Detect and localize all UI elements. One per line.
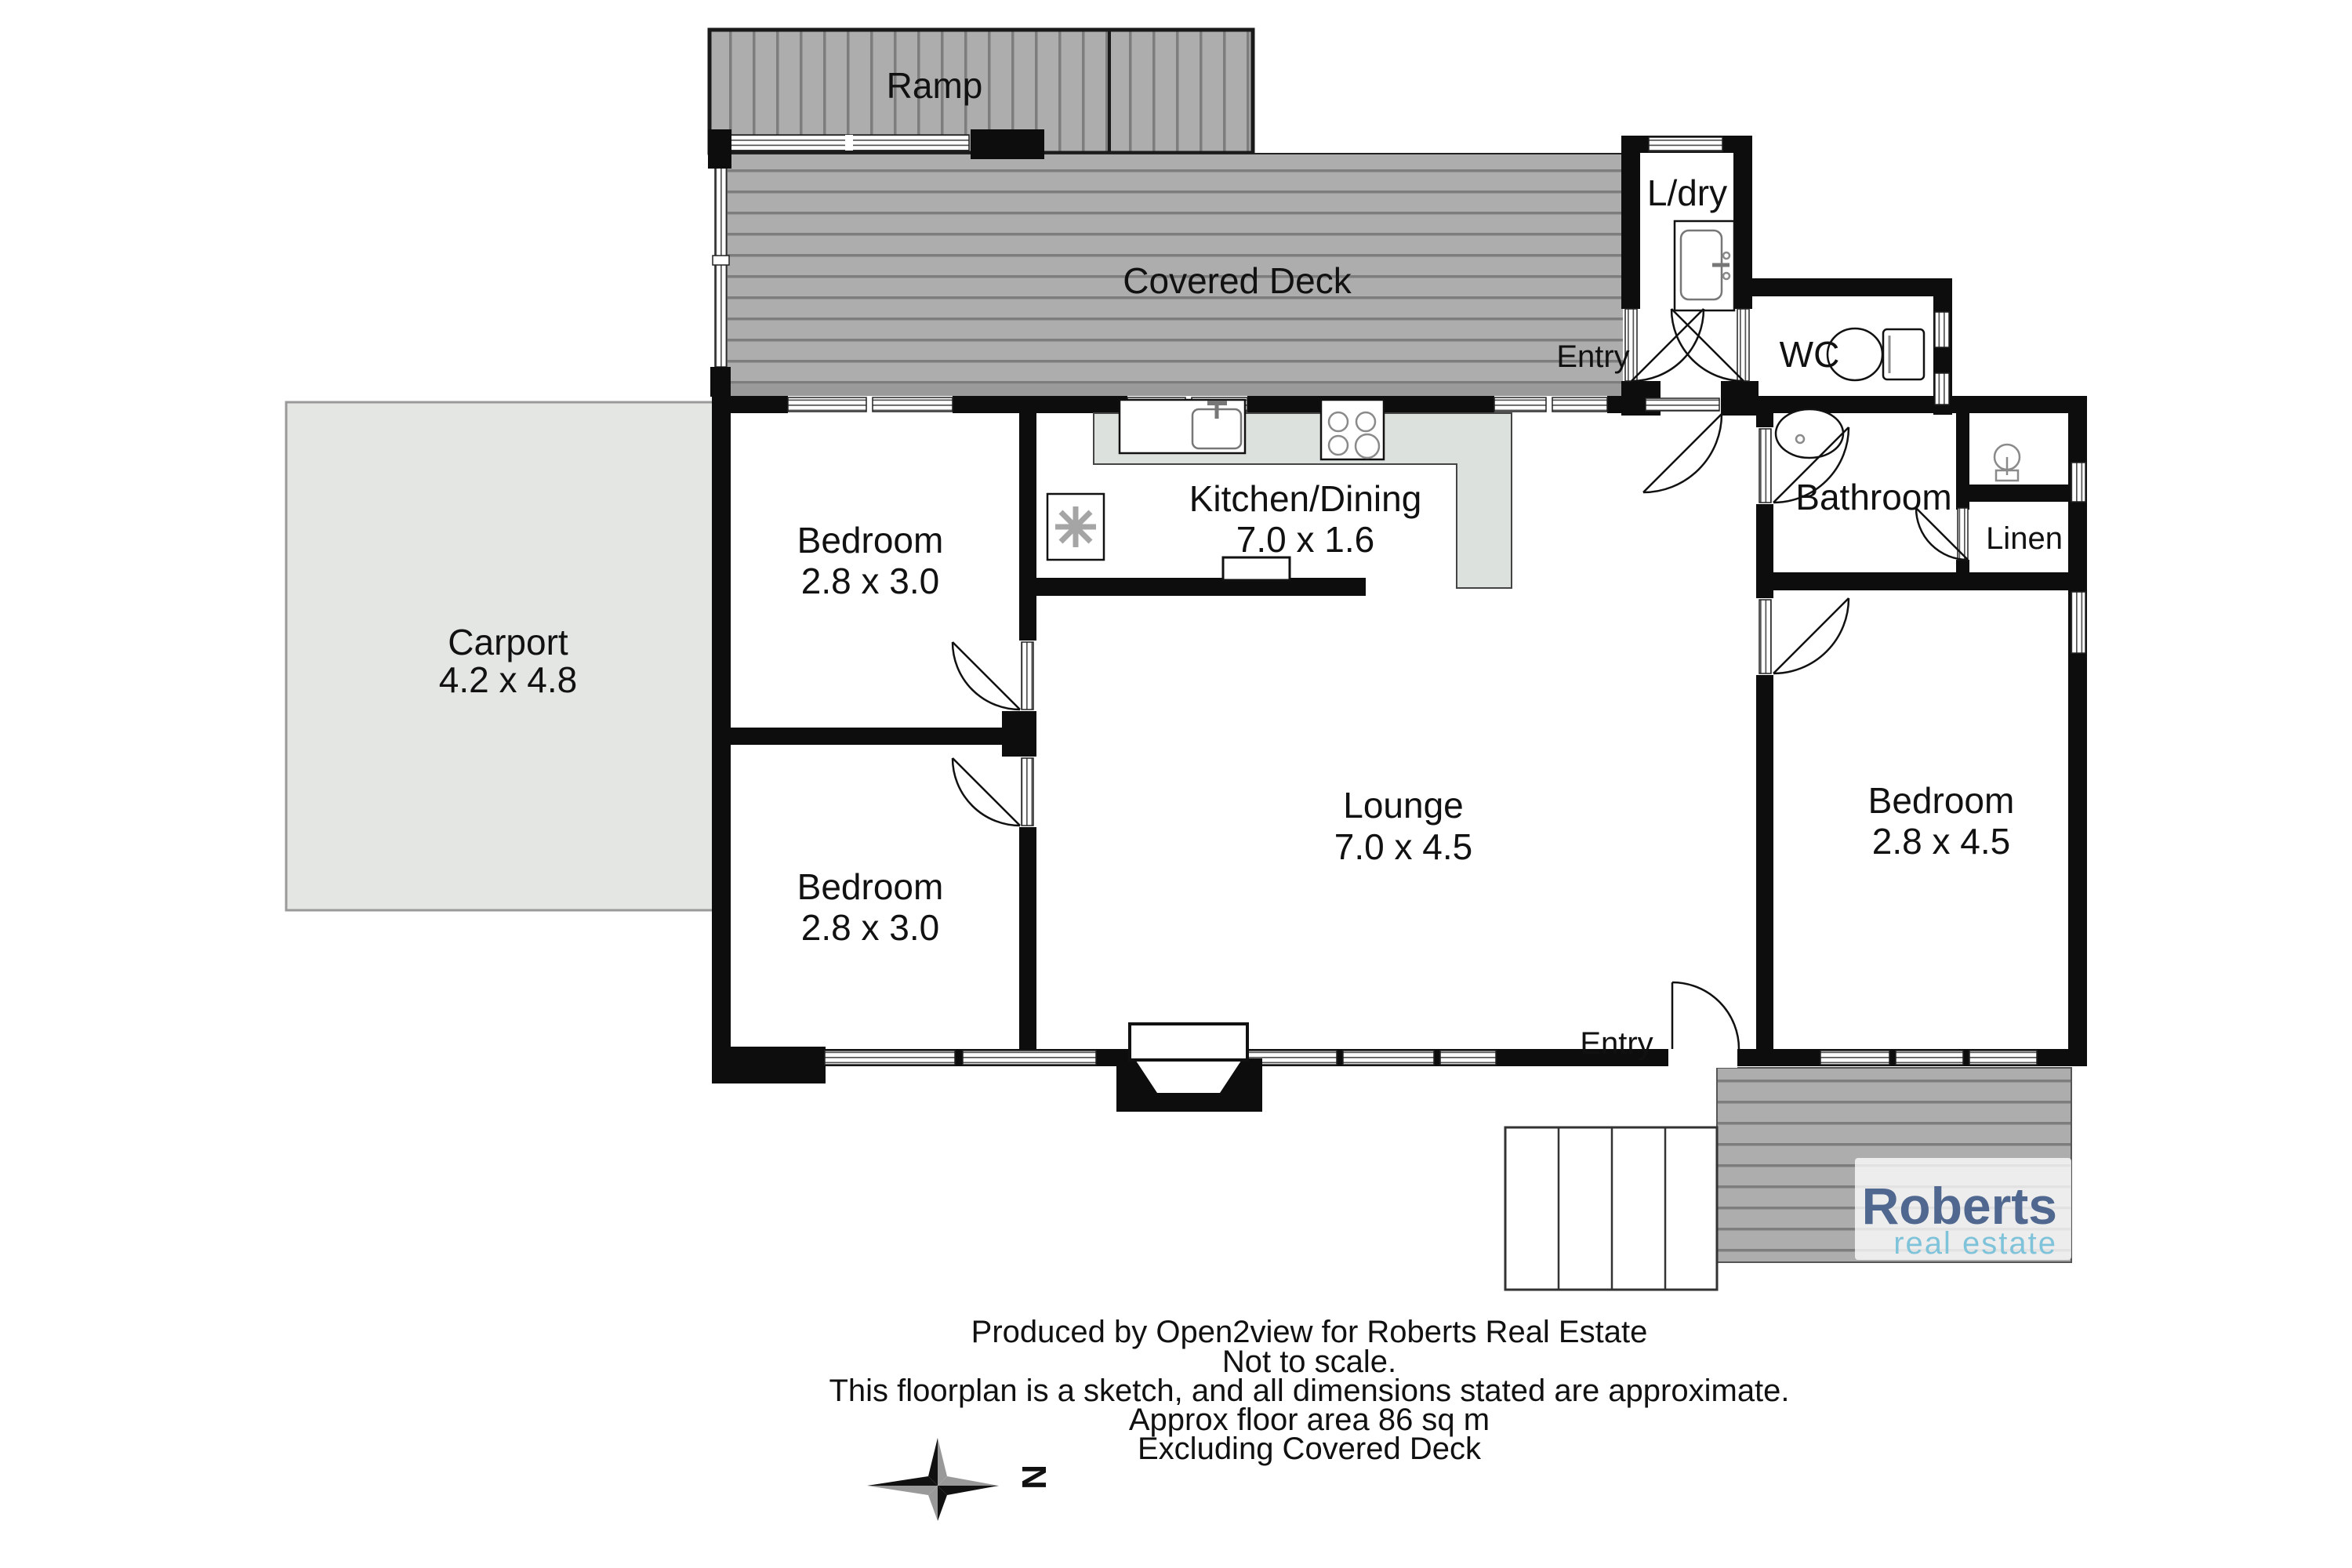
bedroom3-dims: 2.8 x 4.5 [1872, 821, 2010, 862]
hall-door-jamb [1646, 398, 1719, 411]
bathtub [1776, 409, 1843, 458]
bedroom3-window [1896, 1051, 1963, 1065]
kitchen-sink [1120, 400, 1245, 453]
dining-window [1494, 397, 1546, 412]
deck-post [710, 367, 731, 397]
heater-fan-icon [1055, 506, 1096, 547]
kitchen-label: Kitchen/Dining [1189, 478, 1422, 519]
toilet [1828, 328, 1924, 380]
laundry-label: L/dry [1647, 172, 1727, 213]
bedroom3-window [1820, 1051, 1889, 1065]
lounge-label: Lounge [1343, 785, 1464, 826]
bedroom2-window [963, 1051, 1096, 1065]
entry-bottom-label: Entry [1580, 1026, 1653, 1061]
compass-point [867, 1486, 938, 1495]
carport-dims: 4.2 x 4.8 [439, 659, 577, 700]
bedroom1-dims: 2.8 x 3.0 [801, 561, 939, 601]
wood-heater [1047, 494, 1104, 560]
bedroom2-window [825, 1051, 955, 1065]
rear-steps [1505, 1127, 1717, 1290]
wc-door-jamb [1737, 309, 1749, 381]
ramp-label: Ramp [887, 65, 983, 106]
footer-line-5: Excluding Covered Deck [1138, 1432, 1482, 1466]
lounge-dims: 7.0 x 4.5 [1334, 826, 1472, 867]
bedroom2-dims: 2.8 x 3.0 [801, 907, 939, 948]
shower-window [2071, 463, 2085, 502]
laundry-window [1649, 137, 1722, 151]
lounge-window [1343, 1051, 1434, 1065]
front-porch [1116, 1024, 1262, 1112]
carport-label: Carport [448, 622, 568, 662]
lounge-window [1440, 1051, 1496, 1065]
hearth-bench [1223, 557, 1290, 580]
logo-tagline-text: real estate [1893, 1226, 2057, 1261]
bedroom3-label: Bedroom [1868, 780, 2015, 821]
bedroom1-window [788, 397, 866, 412]
north-label: N [1014, 1465, 1053, 1490]
covered-deck-label: Covered Deck [1123, 260, 1352, 301]
linen-label: Linen [1986, 521, 2063, 556]
porch-step [1130, 1024, 1247, 1060]
dining-window [1552, 397, 1607, 412]
ramp-post [971, 129, 1044, 159]
bathroom-door-jamb [1759, 429, 1771, 503]
railing-post [713, 256, 729, 265]
railing-post [845, 135, 853, 151]
bedroom2-label: Bedroom [797, 866, 944, 907]
bathtub-icon [1776, 409, 1843, 458]
wc-label: WC [1780, 334, 1840, 375]
bedroom1-label: Bedroom [797, 520, 944, 561]
wc-window [1935, 373, 1949, 405]
entry-top-label: Entry [1556, 339, 1629, 374]
compass-point [938, 1486, 999, 1495]
footer-disclaimer: Produced by Open2view for Roberts Real E… [829, 1315, 1789, 1466]
bedroom3-side-window [2071, 592, 2085, 653]
wc-window [1935, 312, 1949, 347]
cooktop [1321, 400, 1384, 459]
deck-edge-board [728, 384, 1637, 396]
ramp-post [708, 129, 731, 169]
bedroom3-door-jamb [1759, 600, 1771, 673]
deck-left-railing [715, 165, 727, 367]
bedroom2-door-jamb [1022, 758, 1033, 826]
compass-point [938, 1476, 999, 1486]
roberts-logo: Roberts real estate [1855, 1158, 2071, 1261]
compass-point [867, 1476, 938, 1486]
bedroom3-window [1969, 1051, 2037, 1065]
compass-rose: N [867, 1438, 1053, 1521]
bedroom1-door-jamb [1022, 642, 1033, 710]
bedroom1-window [873, 397, 953, 412]
sink-unit [1120, 400, 1245, 453]
kitchen-dims: 7.0 x 1.6 [1236, 519, 1374, 560]
bathroom-label: Bathroom [1795, 477, 1951, 517]
laundry-tub [1675, 221, 1734, 310]
entry-opening [1668, 1047, 1737, 1068]
floorplan-canvas: Ramp Covered Deck L/dry Entry WC Bathroo… [0, 0, 2352, 1568]
